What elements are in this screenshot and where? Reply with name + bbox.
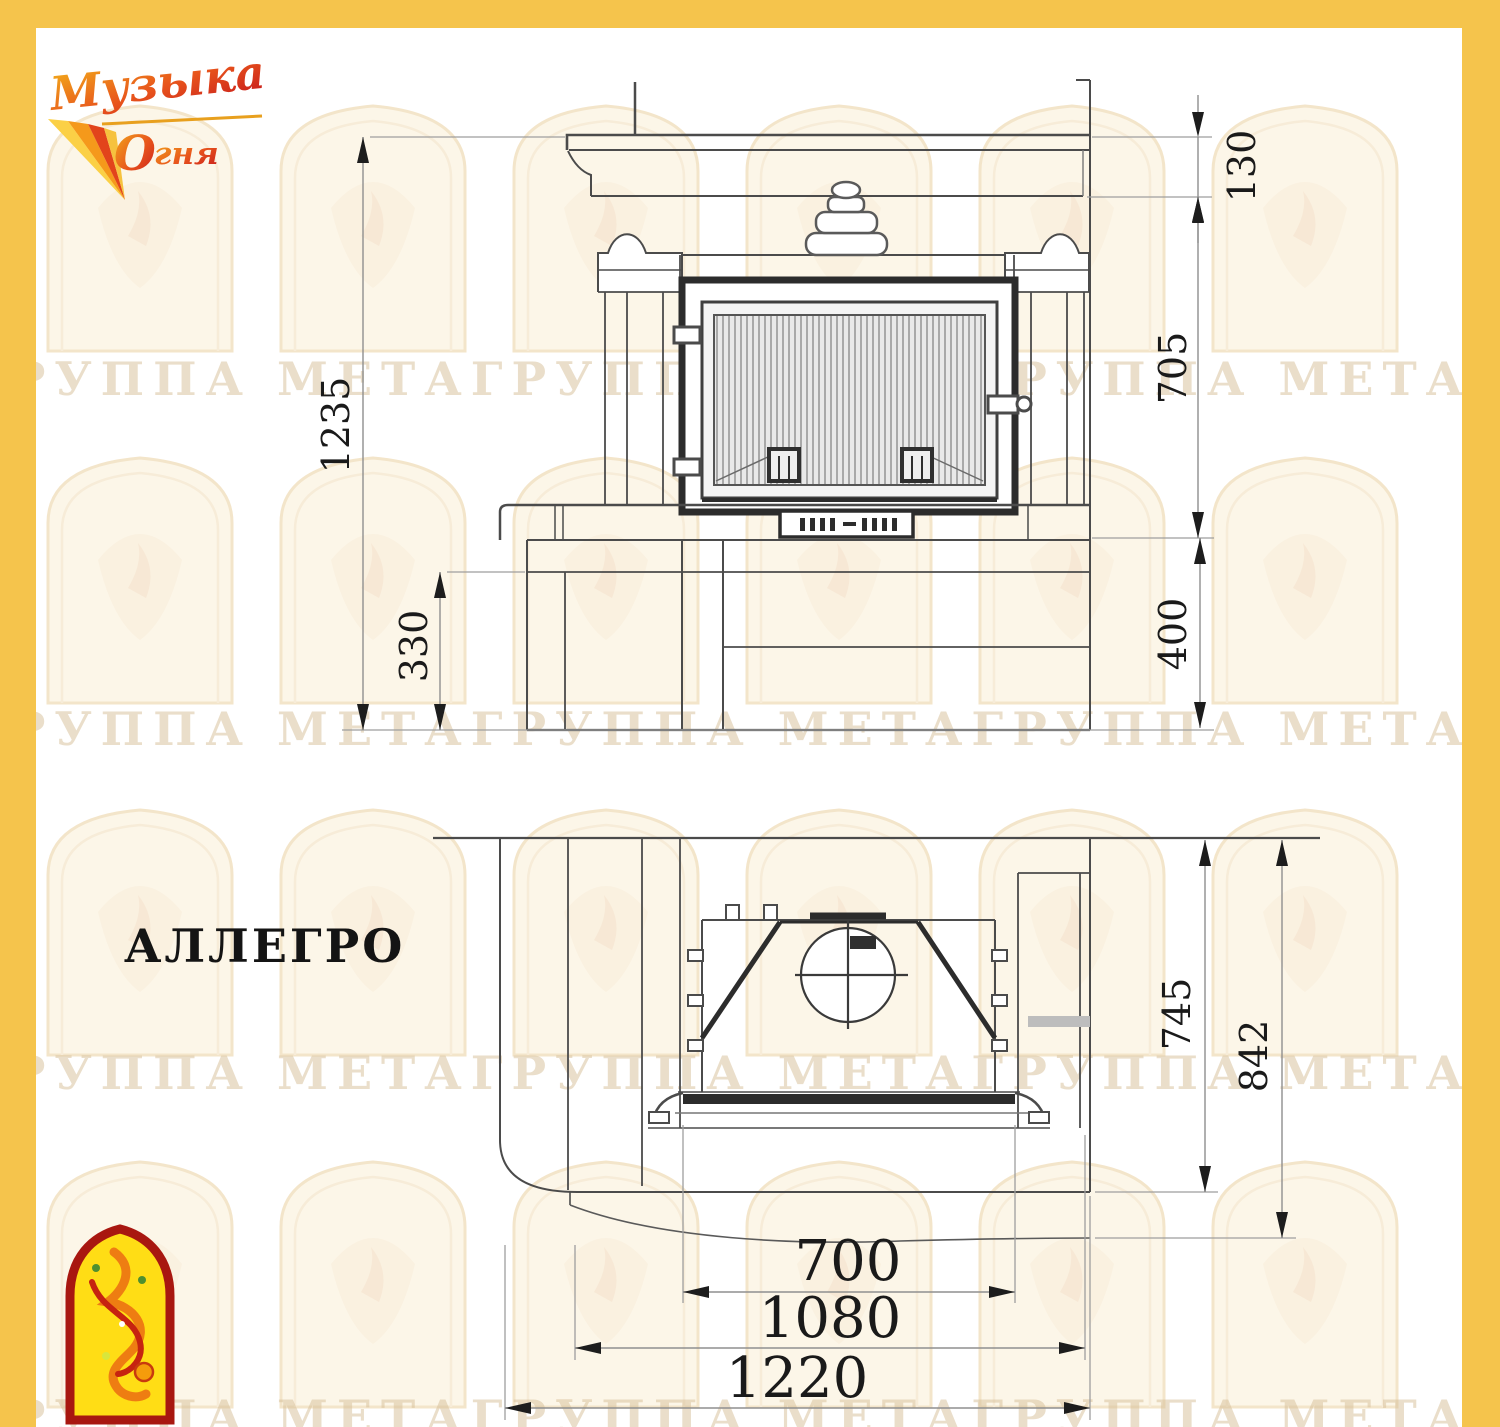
hearth-cap-plan <box>1028 1016 1090 1027</box>
page-frame-top <box>0 0 1500 28</box>
model-name-label: АЛЛЕГРО <box>124 919 405 973</box>
dim-front-plinth-height: 400 <box>1151 598 1195 671</box>
frieze-vase-ornament <box>806 182 887 255</box>
fireplace-drawing-sheet: ГРУППА МЕТАГРУППА МЕТАГРУППА МЕТАГРУППА … <box>0 0 1500 1427</box>
dim-plan-total-width: 1220 <box>726 1346 869 1411</box>
page-frame-left <box>0 0 36 1427</box>
cornice-profile <box>568 151 591 196</box>
brand-emblem-bottom <box>70 1229 170 1420</box>
brand-logo-top: Музыка О гня <box>46 45 268 200</box>
technical-drawing: 1235 330 130 705 400 745 842 700 1080 12… <box>0 0 1500 1427</box>
door-handle <box>988 396 1018 413</box>
vent-grille <box>780 511 913 537</box>
dim-plan-depth-to-front: 745 <box>1155 978 1199 1051</box>
flue-outlet-symbol <box>795 921 908 1029</box>
page-frame-right <box>1462 0 1500 1427</box>
dim-plan-front-width: 1080 <box>759 1286 902 1351</box>
capital-left <box>598 234 682 292</box>
door-hinge-top <box>674 327 700 343</box>
dim-plan-depth-total: 842 <box>1232 1020 1276 1093</box>
firebox-side-wall-left <box>702 922 780 1038</box>
dim-front-bench-height: 330 <box>392 610 436 683</box>
brand-word-1: Музыка <box>46 45 268 121</box>
dim-front-portal-height: 705 <box>1151 332 1195 405</box>
door-hinge-bottom <box>674 459 700 475</box>
bench-corner-arc <box>500 1140 577 1192</box>
damper-handle <box>850 936 876 949</box>
mantel-shelf-top <box>567 135 1090 150</box>
dim-plan-firebox-width: 700 <box>795 1229 902 1294</box>
dim-front-mantel-band: 130 <box>1220 130 1264 203</box>
column-left <box>605 292 680 505</box>
dim-front-total-height: 1235 <box>314 377 358 474</box>
firebox-side-wall-right <box>918 922 995 1038</box>
door-glass <box>714 315 985 485</box>
front-view <box>500 80 1090 730</box>
brand-word-2-rest: гня <box>154 136 219 172</box>
brand-word-2-initial: О <box>114 126 156 182</box>
sun-ornament <box>135 1363 153 1381</box>
